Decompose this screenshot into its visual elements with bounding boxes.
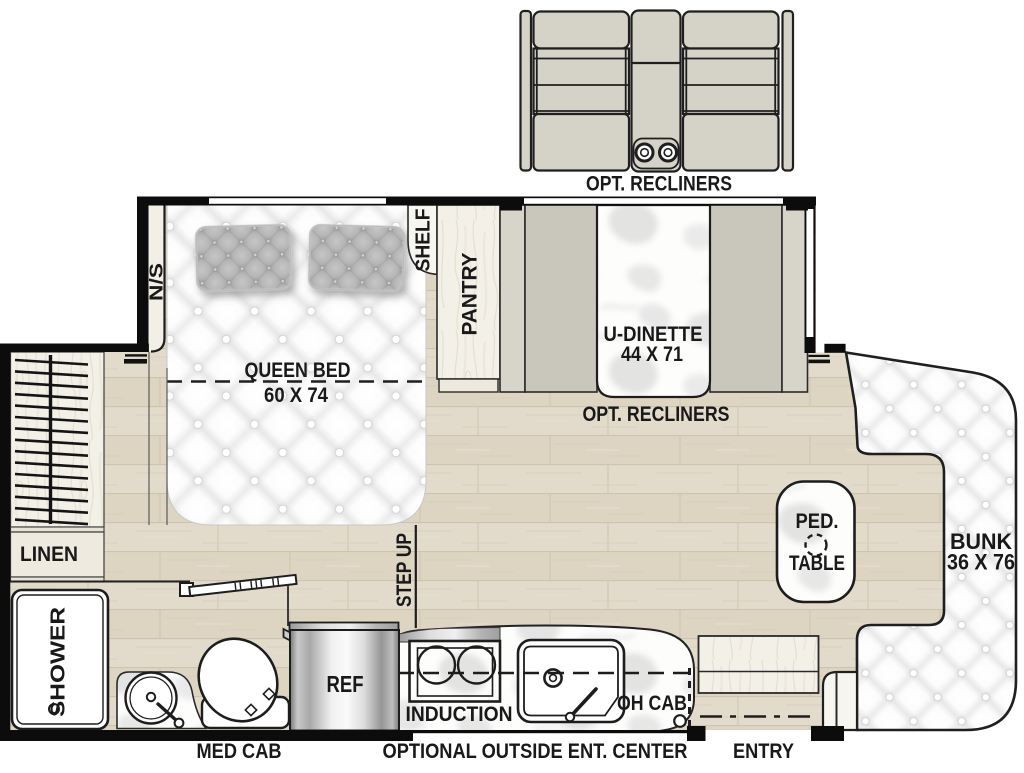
svg-text:PED.: PED. [796, 510, 839, 533]
svg-text:SHOWER: SHOWER [48, 606, 70, 717]
svg-text:OPT. RECLINERS: OPT. RECLINERS [586, 173, 732, 196]
svg-text:OPT. RECLINERS: OPT. RECLINERS [583, 403, 730, 426]
svg-text:PANTRY: PANTRY [459, 253, 482, 336]
svg-text:INDUCTION: INDUCTION [406, 703, 513, 726]
svg-text:QUEEN BED: QUEEN BED [245, 359, 351, 382]
svg-text:TABLE: TABLE [789, 552, 845, 575]
svg-text:REF: REF [327, 671, 364, 697]
svg-text:OPTIONAL OUTSIDE ENT. CENTER: OPTIONAL OUTSIDE ENT. CENTER [383, 740, 688, 763]
svg-text:SHELF: SHELF [413, 209, 435, 272]
svg-text:44 X 71: 44 X 71 [621, 343, 683, 366]
svg-text:LINEN: LINEN [20, 543, 78, 566]
svg-text:36 X 76: 36 X 76 [947, 550, 1015, 575]
svg-text:N/S: N/S [147, 263, 167, 301]
svg-text:MED CAB: MED CAB [197, 740, 282, 763]
svg-text:60 X 74: 60 X 74 [264, 384, 328, 407]
svg-text:OH CAB: OH CAB [617, 692, 687, 715]
svg-text:STEP UP: STEP UP [393, 533, 416, 607]
svg-text:ENTRY: ENTRY [733, 740, 794, 763]
